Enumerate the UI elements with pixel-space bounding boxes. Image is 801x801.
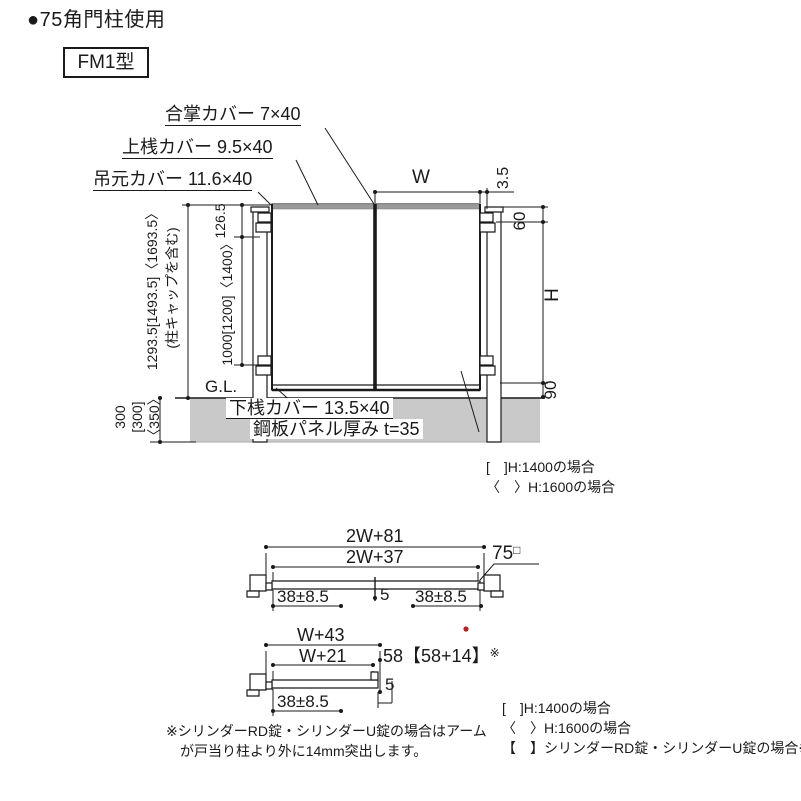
- legend-h1400: [ ]H:1400の場合: [502, 701, 611, 717]
- post-size-label: 75□: [492, 543, 520, 564]
- plan-double-outer-dim: 2W+81: [346, 526, 404, 546]
- legend-cylinder-lock: 【 】シリンダーRD錠・シリンダーU錠の場合※: [502, 741, 801, 757]
- total-height-note: (柱キャップを含む): [162, 227, 182, 348]
- gate-bar: [272, 680, 378, 688]
- total-height-dim-label: 1293.5[1493.5]〈1693.5〉 (柱キャップを含む): [143, 168, 181, 408]
- gesan-cover-label: 下桟カバー 13.5×40: [226, 398, 393, 419]
- gassho-cover-label: 合掌カバー 7×40: [165, 104, 301, 126]
- square-symbol: □: [513, 543, 520, 557]
- reference-mark: ※: [490, 646, 500, 660]
- height-dim-label: H: [543, 275, 563, 315]
- panel-thickness-label: 鋼板パネル厚み t=35: [250, 419, 423, 439]
- door-stop-dim-label: 58【58+14】※: [383, 646, 500, 666]
- width-dim-label: W: [412, 167, 430, 188]
- josan-cover-label: 上桟カバー 9.5×40: [122, 137, 273, 159]
- embed-depth-1: 300: [112, 405, 129, 428]
- total-height-value: 1293.5[1493.5]〈1693.5〉: [142, 206, 162, 370]
- plan-double-inner-dim: 2W+37: [346, 547, 404, 567]
- plan-single-inner-dim: W+21: [299, 646, 347, 666]
- right-post-cap: [485, 207, 503, 212]
- post-size-value: 75: [492, 543, 513, 564]
- hinge-right-bottom: [480, 356, 495, 375]
- plan-single-gap-dim: 5: [385, 675, 394, 694]
- gap-dim-label: 3.5: [496, 158, 512, 198]
- model-label: FM1型: [77, 52, 134, 73]
- bottom-90-dim-label: 90: [542, 370, 560, 410]
- embed-depth-dim-label: 300 [300] 〈350〉: [111, 387, 163, 447]
- post-block-left: [247, 674, 272, 696]
- technical-drawing-page: ●75角門柱使用 FM1型 合掌カバー 7×40 上桟カバー 9.5×40 吊元…: [0, 0, 801, 801]
- page-title: ●75角門柱使用: [27, 9, 165, 31]
- door-stop-notch: [371, 672, 378, 680]
- embed-depth-3: 〈350〉: [146, 391, 163, 442]
- plan-single-outer-dim: W+43: [297, 625, 345, 645]
- top-60-dim-label: 60: [511, 201, 529, 241]
- embed-depth-2: [300]: [129, 401, 146, 432]
- ground-level-label: G.L.: [205, 377, 237, 396]
- footnote-line1: ※シリンダーRD錠・シリンダーU錠の場合はアーム: [166, 724, 487, 740]
- left-post-cap: [251, 207, 269, 212]
- plan-double-left-dim: 38±8.5: [277, 587, 329, 606]
- plan-double-right-dim: 38±8.5: [415, 587, 467, 606]
- hinge-left-top: [256, 213, 271, 232]
- mid-note-h1400: [ ]H:1400の場合: [486, 460, 595, 476]
- hinge-right-top: [480, 213, 495, 232]
- right-gate-post: [487, 211, 501, 442]
- red-dot-mark: [463, 626, 468, 631]
- legend-h1600: 〈 〉H:1600の場合: [502, 721, 631, 737]
- plan-double-center-dim: 5: [380, 585, 389, 604]
- door-stop-dim-value: 58【58+14】: [383, 646, 490, 666]
- plan-single-left-dim: 38±8.5: [277, 692, 329, 711]
- post-block-left: [247, 575, 272, 597]
- footnote-line2: が戸当り柱より外に14mm突出します。: [180, 744, 427, 760]
- hinge-span-dim-label: 1000[1200]〈1400〉: [220, 221, 236, 381]
- model-badge: FM1型: [63, 47, 149, 78]
- mid-note-h1600: 〈 〉H:1600の場合: [486, 480, 615, 496]
